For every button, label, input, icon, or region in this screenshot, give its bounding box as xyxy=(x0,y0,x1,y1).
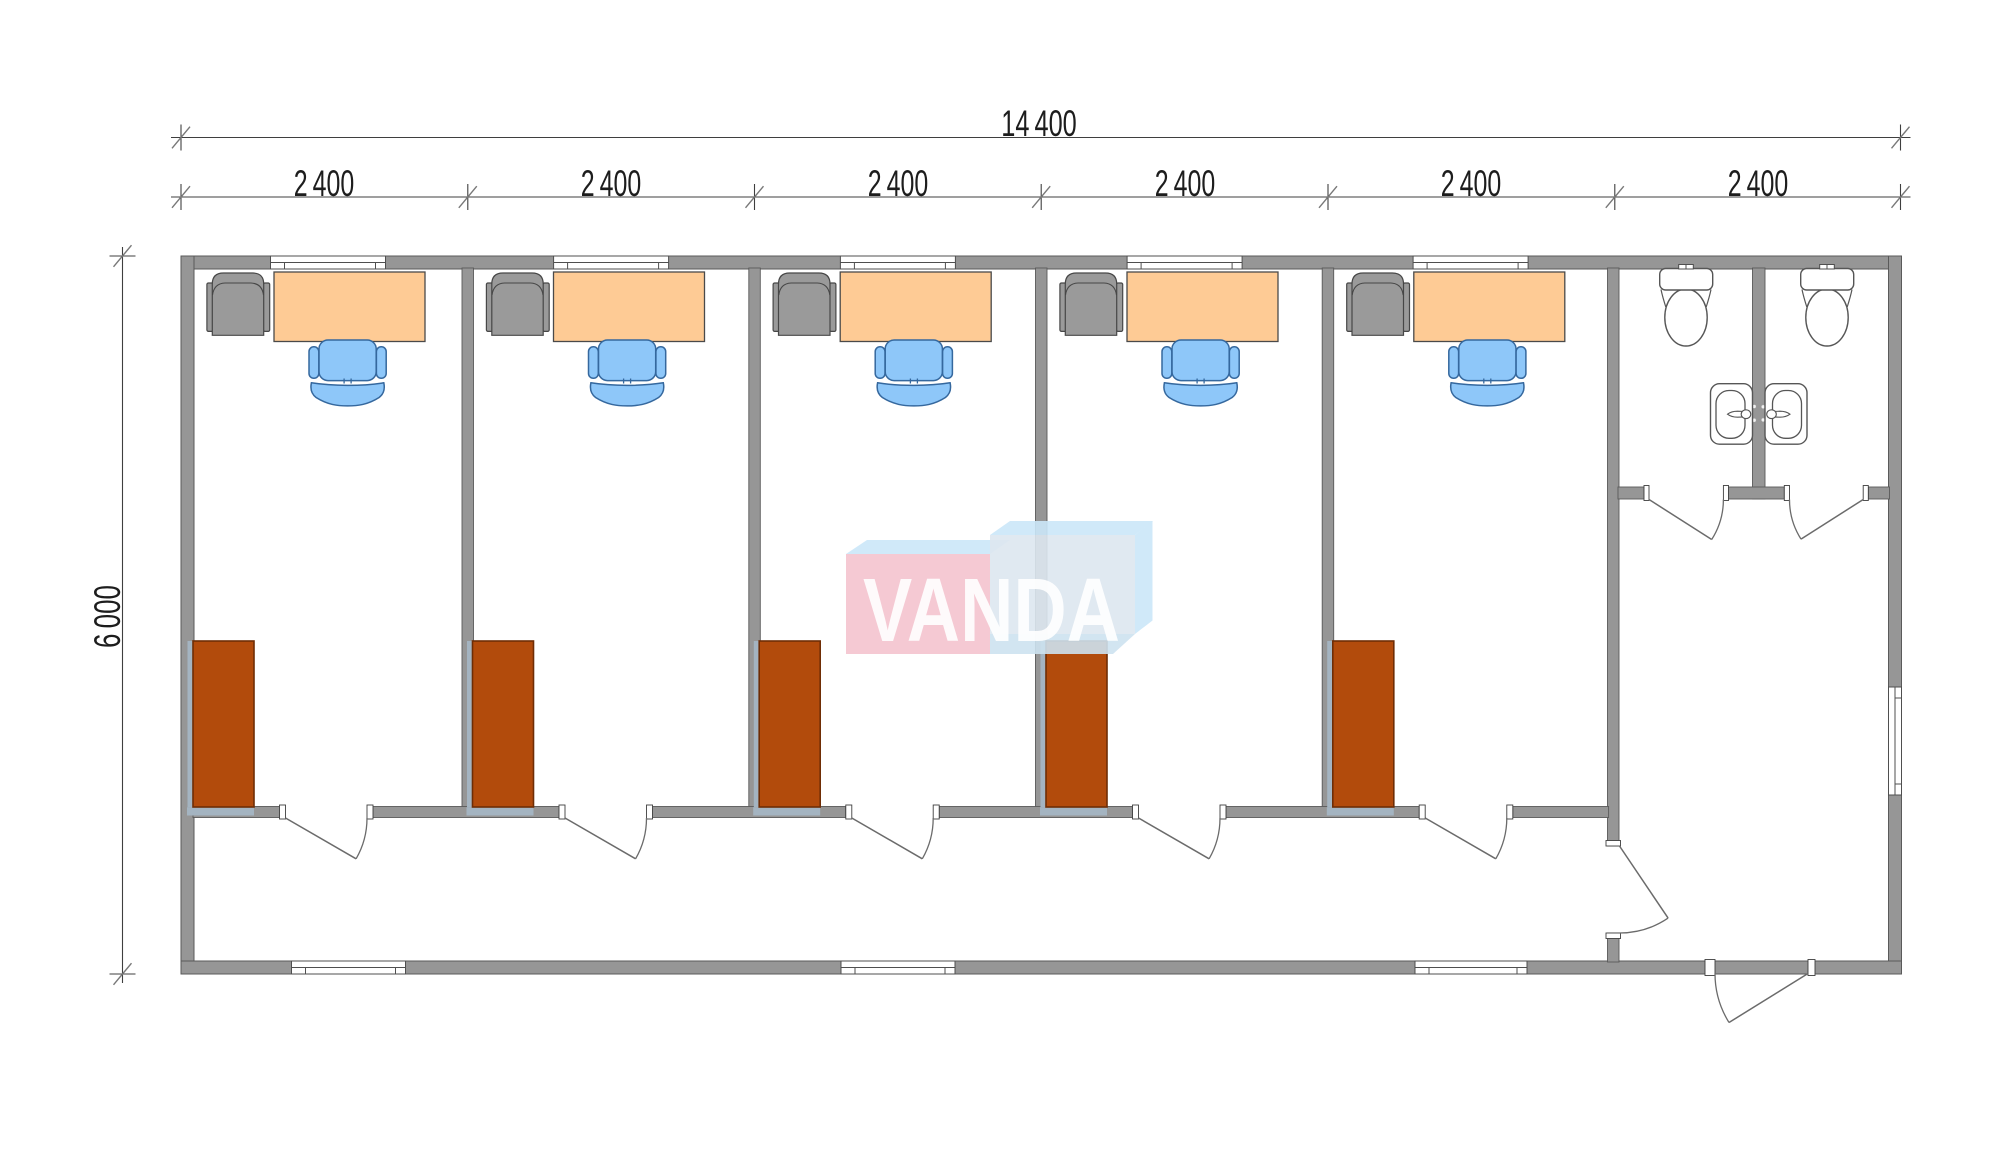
svg-text:14 400: 14 400 xyxy=(1001,103,1077,144)
svg-text:2 400: 2 400 xyxy=(1728,163,1789,204)
svg-text:6 000: 6 000 xyxy=(87,585,128,648)
svg-text:2 400: 2 400 xyxy=(1441,163,1502,204)
svg-text:2 400: 2 400 xyxy=(294,163,355,204)
svg-text:2 400: 2 400 xyxy=(581,163,642,204)
svg-text:VANDA: VANDA xyxy=(863,561,1120,661)
svg-text:2 400: 2 400 xyxy=(1155,163,1216,204)
svg-text:2 400: 2 400 xyxy=(868,163,929,204)
